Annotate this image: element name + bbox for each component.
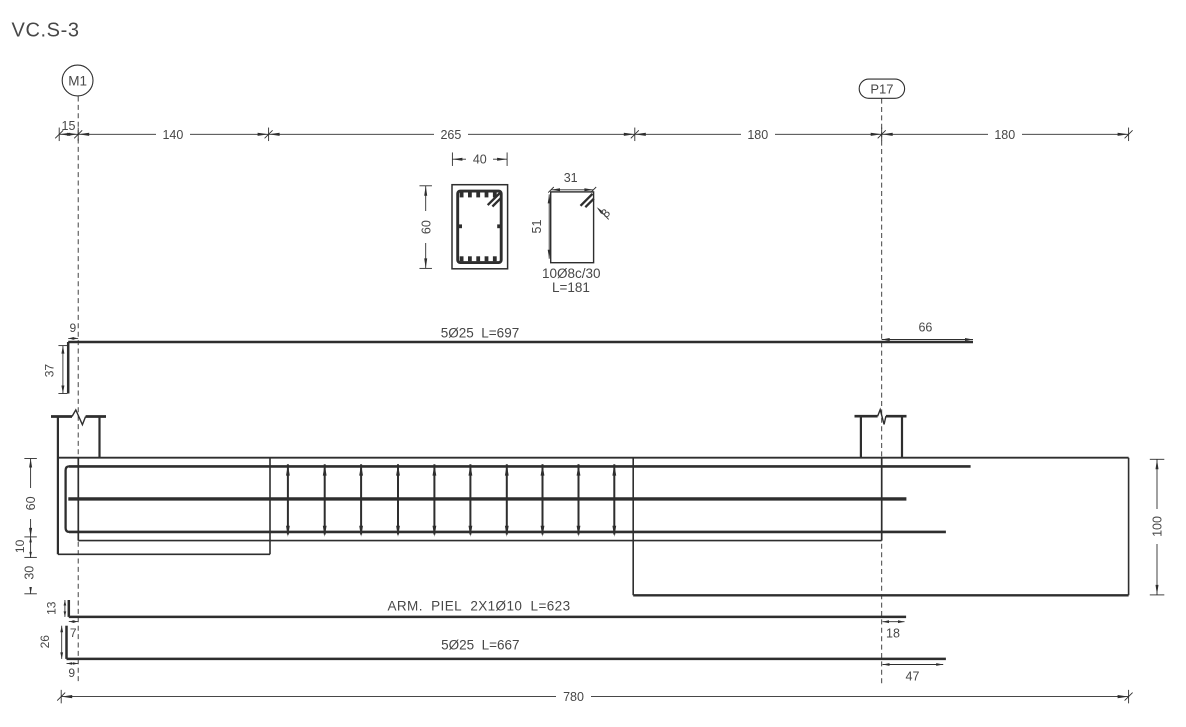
svg-text:780: 780 xyxy=(563,690,584,704)
svg-text:7: 7 xyxy=(70,626,77,640)
svg-text:100: 100 xyxy=(1151,516,1165,537)
svg-text:60: 60 xyxy=(24,496,38,510)
svg-text:ARM. PIEL 2X1Ø10 L=623: ARM. PIEL 2X1Ø10 L=623 xyxy=(388,598,571,613)
svg-text:47: 47 xyxy=(906,669,920,683)
svg-text:180: 180 xyxy=(994,128,1015,142)
svg-text:M1: M1 xyxy=(68,73,87,88)
svg-text:13: 13 xyxy=(44,601,58,615)
svg-text:51: 51 xyxy=(530,220,544,234)
svg-text:5Ø25 L=667: 5Ø25 L=667 xyxy=(441,637,519,652)
svg-text:9: 9 xyxy=(70,321,77,335)
svg-text:9: 9 xyxy=(68,666,75,680)
svg-text:140: 140 xyxy=(162,128,183,142)
svg-text:265: 265 xyxy=(440,128,461,142)
svg-text:10: 10 xyxy=(13,539,27,553)
svg-text:5Ø25 L=697: 5Ø25 L=697 xyxy=(441,325,519,340)
svg-text:L=181: L=181 xyxy=(552,280,590,295)
svg-text:37: 37 xyxy=(43,364,57,378)
svg-text:26: 26 xyxy=(38,635,52,649)
svg-text:18: 18 xyxy=(886,627,900,641)
svg-text:66: 66 xyxy=(918,321,932,335)
svg-text:180: 180 xyxy=(747,128,768,142)
svg-text:VC.S-3: VC.S-3 xyxy=(12,20,80,42)
svg-text:10Ø8c/30: 10Ø8c/30 xyxy=(542,266,601,281)
svg-text:40: 40 xyxy=(473,153,487,167)
svg-text:15: 15 xyxy=(62,119,76,133)
svg-text:P17: P17 xyxy=(870,81,893,96)
svg-text:30: 30 xyxy=(22,566,36,580)
svg-text:60: 60 xyxy=(419,220,433,234)
svg-text:31: 31 xyxy=(564,171,578,185)
